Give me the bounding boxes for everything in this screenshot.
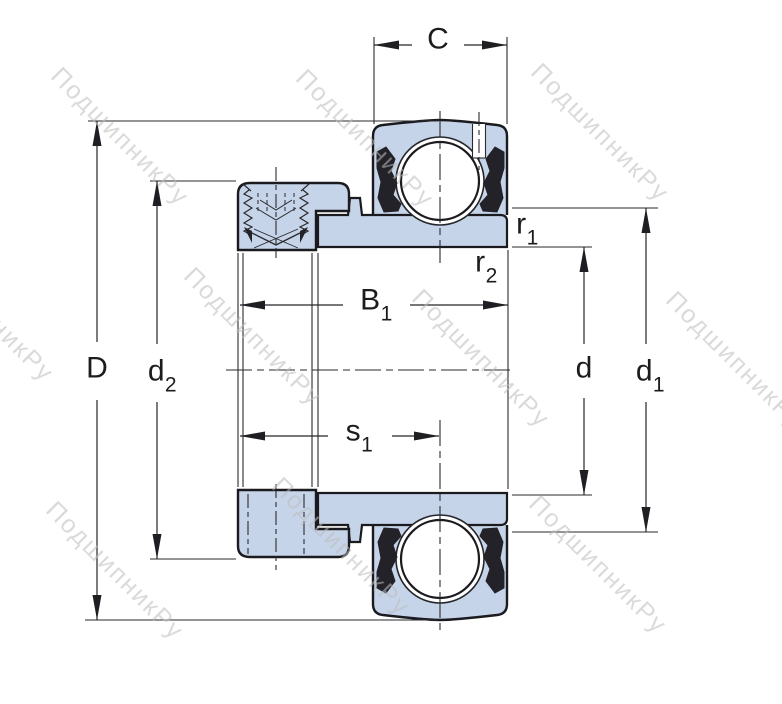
dim-label-D: D: [86, 354, 108, 389]
bearing-drawing-canvas: C D d2 B1 s1 r1 r2 d d1 ПодшипникРу Подш…: [0, 0, 782, 704]
dim-label-d2: d2: [148, 357, 176, 392]
dim-label-C: C: [427, 25, 449, 60]
extension-lines: [85, 37, 658, 620]
dim-label-r2: r2: [475, 248, 497, 283]
dim-label-B1: B1: [360, 286, 392, 321]
bearing-bottom-half-mirror: [238, 490, 507, 620]
dim-label-d: d: [576, 354, 593, 389]
bearing-cross-section-drawing: [0, 0, 782, 704]
dim-label-d1: d1: [636, 357, 664, 392]
dimension-s1: [240, 432, 439, 441]
dimension-lines: [93, 41, 651, 621]
dim-label-s1: s1: [346, 417, 373, 452]
bearing-top-half: [238, 120, 507, 250]
dim-label-r1: r1: [516, 210, 538, 245]
